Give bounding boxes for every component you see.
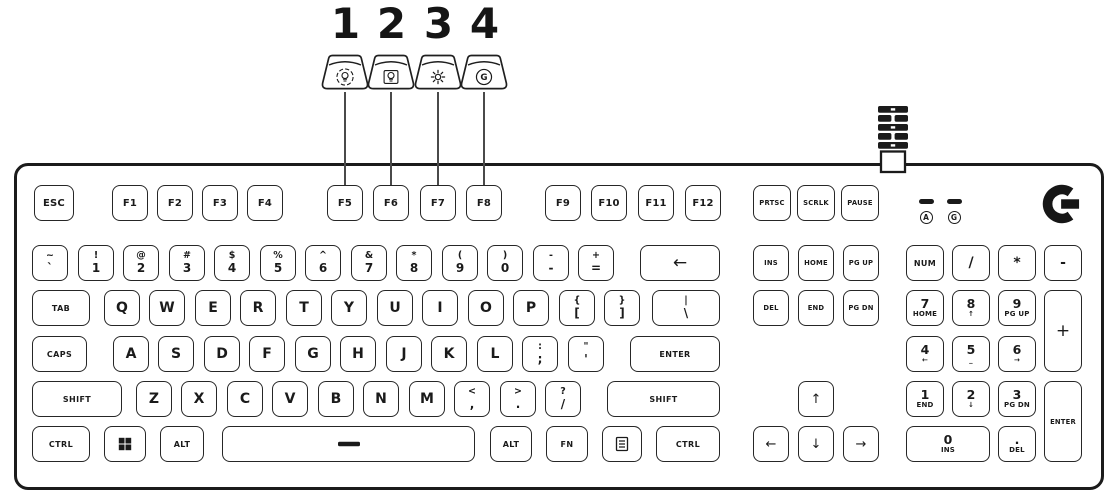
- key-l: L: [477, 336, 513, 372]
- key-backslash: |\: [652, 290, 720, 326]
- key-caps: CAPS: [32, 336, 87, 372]
- key-e: E: [195, 290, 231, 326]
- key-bottom-legend: =: [591, 262, 601, 275]
- key-k: K: [431, 336, 467, 372]
- key-lshift: SHIFT: [32, 381, 122, 417]
- key-equals: +=: [578, 245, 614, 281]
- key-bottom-legend: PG UP: [1004, 310, 1029, 319]
- callout-line-1: [344, 92, 346, 187]
- key-rshift: SHIFT: [607, 381, 720, 417]
- callout-keycap-4: G: [456, 52, 512, 92]
- key-w: W: [149, 290, 185, 326]
- key-ins: INS: [753, 245, 789, 281]
- windows-icon: [113, 432, 137, 456]
- key-f10: F10: [591, 185, 627, 221]
- key-pause: PAUSE: [841, 185, 879, 221]
- braided-cable-icon: [876, 106, 910, 174]
- caps-indicator-letter: A: [923, 213, 929, 222]
- key-bottom-legend: 6: [319, 262, 327, 275]
- key-bottom-legend: ]: [619, 307, 624, 320]
- key-top-legend: .: [1015, 433, 1020, 446]
- key-comma: <,: [454, 381, 490, 417]
- key-num8: *8: [396, 245, 432, 281]
- key-bottom-legend: .: [516, 398, 521, 411]
- key-bottom-legend: 5: [274, 262, 282, 275]
- key-npplus: +: [1044, 290, 1082, 372]
- key-num2: @2: [123, 245, 159, 281]
- key-rbracket: }]: [604, 290, 640, 326]
- key-f3: F3: [202, 185, 238, 221]
- key-r: R: [240, 290, 276, 326]
- key-bottom-legend: ;: [538, 353, 543, 366]
- key-np9: 9PG UP: [998, 290, 1036, 326]
- key-z: Z: [136, 381, 172, 417]
- key-bottom-legend: INS: [941, 446, 955, 455]
- callout-line-2: [390, 92, 392, 187]
- key-semicolon: :;: [522, 336, 558, 372]
- key-lalt: ALT: [160, 426, 204, 462]
- key-bottom-legend: 8: [410, 262, 418, 275]
- key-f12: F12: [685, 185, 721, 221]
- key-tab: TAB: [32, 290, 90, 326]
- key-d: D: [204, 336, 240, 372]
- key-m: M: [409, 381, 445, 417]
- game-mode-indicator: G: [945, 199, 963, 224]
- key-top-legend: 0: [944, 433, 953, 446]
- key-top-legend: 4: [921, 343, 930, 356]
- key-npdivide: /: [952, 245, 990, 281]
- key-bottom-legend: 7: [365, 262, 373, 275]
- key-num5: %5: [260, 245, 296, 281]
- key-u: U: [377, 290, 413, 326]
- key-del: DEL: [753, 290, 789, 326]
- key-minus: --: [533, 245, 569, 281]
- caps-lock-led: [919, 199, 934, 204]
- key-home: HOME: [798, 245, 834, 281]
- key-bottom-legend: 4: [228, 262, 236, 275]
- key-top-legend: 1: [921, 388, 930, 401]
- key-b: B: [318, 381, 354, 417]
- key-top-legend: 9: [1013, 297, 1022, 310]
- key-top-legend: 6: [1013, 343, 1022, 356]
- key-bottom-legend: 2: [137, 262, 145, 275]
- caps-lock-indicator: A: [917, 199, 935, 224]
- key-a: A: [113, 336, 149, 372]
- key-pgdn: PG DN: [843, 290, 879, 326]
- key-menu: [602, 426, 642, 462]
- key-lctrl: CTRL: [32, 426, 90, 462]
- key-np7: 7HOME: [906, 290, 944, 326]
- key-h: H: [340, 336, 376, 372]
- key-backspace: ←: [640, 245, 720, 281]
- key-bottom-legend: PG DN: [1004, 401, 1030, 410]
- key-g: G: [295, 336, 331, 372]
- key-bottom-legend: [: [574, 307, 579, 320]
- key-np4: 4←: [906, 336, 944, 372]
- key-s: S: [158, 336, 194, 372]
- circled-g-icon: G: [948, 211, 961, 224]
- callout-line-4: [483, 92, 485, 187]
- key-npminus: -: [1044, 245, 1082, 281]
- key-n: N: [363, 381, 399, 417]
- key-quote: "': [568, 336, 604, 372]
- key-ralt: ALT: [490, 426, 532, 462]
- key-fn: FN: [546, 426, 588, 462]
- key-f5: F5: [327, 185, 363, 221]
- svg-text:G: G: [480, 73, 487, 83]
- key-slash: ?/: [545, 381, 581, 417]
- key-bottom-legend: _: [969, 356, 973, 365]
- key-f9: F9: [545, 185, 581, 221]
- key-bottom-legend: ←: [922, 356, 928, 365]
- key-bottom-legend: END: [916, 401, 933, 410]
- key-npenter: ENTER: [1044, 381, 1082, 462]
- key-np3: 3PG DN: [998, 381, 1036, 417]
- key-prtsc: PRTSC: [753, 185, 791, 221]
- key-num0: )0: [487, 245, 523, 281]
- space-dash-icon: [337, 432, 361, 456]
- key-q: Q: [104, 290, 140, 326]
- game-indicator-letter: G: [951, 213, 957, 222]
- key-left: ←: [753, 426, 789, 462]
- key-num: NUM: [906, 245, 944, 281]
- key-npmultiply: *: [998, 245, 1036, 281]
- key-c: C: [227, 381, 263, 417]
- key-pgup: PG UP: [843, 245, 879, 281]
- key-npdecimal: .DEL: [998, 426, 1036, 462]
- key-f1: F1: [112, 185, 148, 221]
- key-scrlk: SCRLK: [797, 185, 835, 221]
- key-bottom-legend: 1: [92, 262, 100, 275]
- key-f4: F4: [247, 185, 283, 221]
- key-lbracket: {[: [559, 290, 595, 326]
- key-t: T: [286, 290, 322, 326]
- key-top-legend: 3: [1013, 388, 1022, 401]
- key-top-legend: 2: [967, 388, 976, 401]
- game-mode-led: [947, 199, 962, 204]
- key-num1: !1: [78, 245, 114, 281]
- key-enter: ENTER: [630, 336, 720, 372]
- key-num6: ^6: [305, 245, 341, 281]
- key-num7: &7: [351, 245, 387, 281]
- key-top-legend: 7: [921, 297, 930, 310]
- key-bottom-legend: \: [684, 307, 688, 320]
- key-up: ↑: [798, 381, 834, 417]
- key-np8: 8↑: [952, 290, 990, 326]
- key-bottom-legend: 3: [183, 262, 191, 275]
- menu-icon: [610, 432, 634, 456]
- key-bottom-legend: 0: [501, 262, 509, 275]
- callout-number-4: 4: [456, 1, 512, 47]
- key-bottom-legend: DEL: [1009, 446, 1025, 455]
- key-num3: #3: [169, 245, 205, 281]
- key-j: J: [386, 336, 422, 372]
- key-bottom-legend: ,: [470, 398, 475, 411]
- callout-line-3: [437, 92, 439, 187]
- key-num9: (9: [442, 245, 478, 281]
- key-bottom-legend: ': [584, 353, 588, 366]
- key-np5: 5_: [952, 336, 990, 372]
- key-end: END: [798, 290, 834, 326]
- key-x: X: [181, 381, 217, 417]
- key-i: I: [422, 290, 458, 326]
- key-bottom-legend: HOME: [913, 310, 937, 319]
- key-f: F: [249, 336, 285, 372]
- key-rctrl: CTRL: [656, 426, 720, 462]
- key-f6: F6: [373, 185, 409, 221]
- key-right: →: [843, 426, 879, 462]
- logitech-g-logo-icon: [1041, 181, 1083, 227]
- key-grave: ~`: [32, 245, 68, 281]
- key-num4: $4: [214, 245, 250, 281]
- key-np0: 0INS: [906, 426, 990, 462]
- key-bottom-legend: 9: [456, 262, 464, 275]
- key-top-legend: 5: [967, 343, 976, 356]
- key-down: ↓: [798, 426, 834, 462]
- key-np6: 6→: [998, 336, 1036, 372]
- key-f7: F7: [420, 185, 456, 221]
- key-bottom-legend: /: [561, 398, 565, 411]
- key-p: P: [513, 290, 549, 326]
- key-np1: 1END: [906, 381, 944, 417]
- key-o: O: [468, 290, 504, 326]
- key-top-legend: 8: [967, 297, 976, 310]
- key-f2: F2: [157, 185, 193, 221]
- circled-a-icon: A: [920, 211, 933, 224]
- stage: ESCF1F2F3F4F5F6F7F8F9F10F11F12PRTSCSCRLK…: [0, 0, 1118, 498]
- key-np2: 2↓: [952, 381, 990, 417]
- key-bottom-legend: ↓: [968, 401, 974, 410]
- key-f11: F11: [638, 185, 674, 221]
- key-bottom-legend: ↑: [968, 310, 974, 319]
- key-esc: ESC: [34, 185, 74, 221]
- key-space: [222, 426, 475, 462]
- key-period: >.: [500, 381, 536, 417]
- key-bottom-legend: →: [1014, 356, 1020, 365]
- key-win: [104, 426, 146, 462]
- key-y: Y: [331, 290, 367, 326]
- key-bottom-legend: -: [549, 262, 554, 275]
- key-f8: F8: [466, 185, 502, 221]
- key-v: V: [272, 381, 308, 417]
- key-bottom-legend: `: [47, 262, 53, 275]
